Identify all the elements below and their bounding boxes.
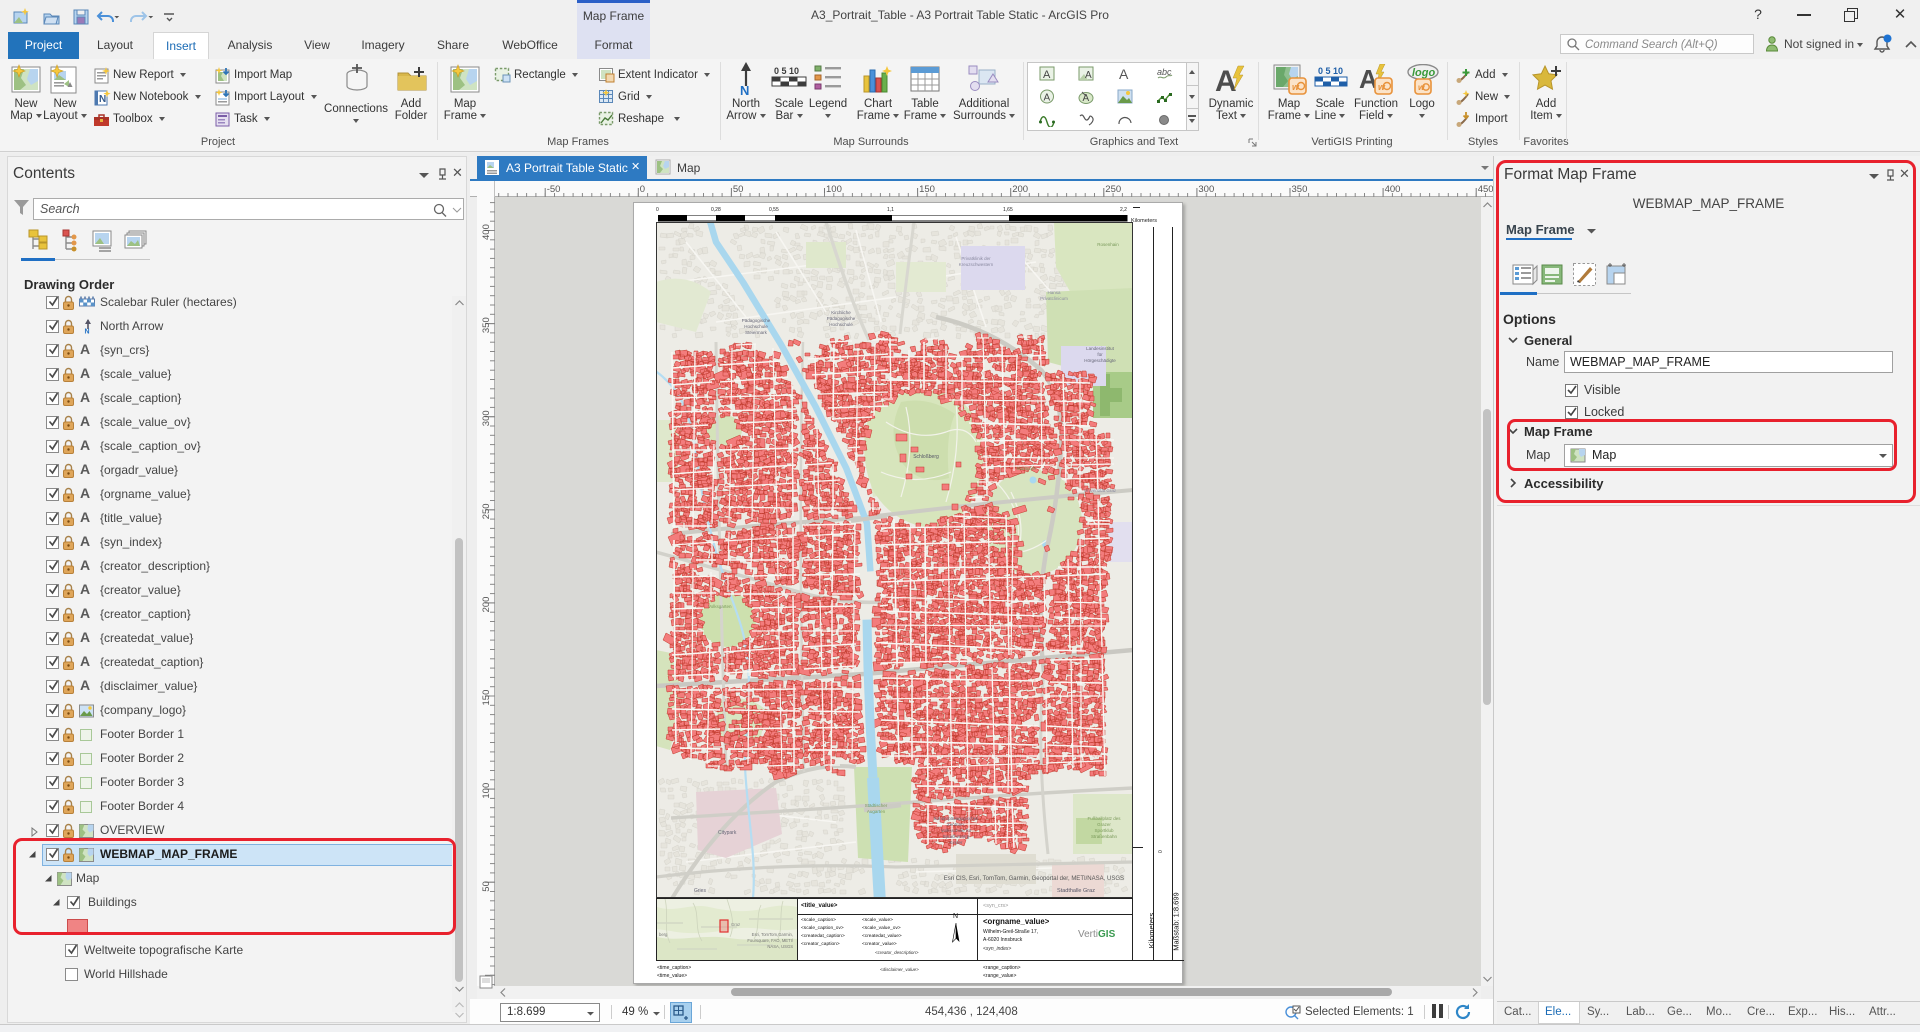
svg-text:200: 200 (481, 597, 492, 613)
svg-text:Rosenhain: Rosenhain (1097, 242, 1119, 247)
svg-text:Volksschule für: Volksschule für (941, 828, 972, 833)
svg-text:Grazer: Grazer (1097, 822, 1111, 827)
svg-text:0 5 10: 0 5 10 (774, 66, 799, 76)
svg-text:A: A (1119, 66, 1129, 81)
svg-text:Pädagogische: Pädagogische (827, 316, 856, 321)
svg-text:Kinder: Kinder (949, 840, 963, 845)
svg-text:Esri CIS, Esri, TomTom, Garmin: Esri CIS, Esri, TomTom, Garmin, Geoporta… (944, 876, 1124, 882)
svg-text:Hochschule: Hochschule (744, 324, 768, 329)
svg-text:Command Search (Alt+Q): Command Search (Alt+Q) (1585, 39, 1718, 51)
svg-text:Sportklub: Sportklub (1094, 828, 1114, 833)
svg-text:-50: -50 (547, 184, 561, 195)
svg-text:0: 0 (640, 184, 645, 195)
svg-text:Städtischer: Städtischer (865, 803, 888, 808)
svg-text:Landesinstitut: Landesinstitut (1086, 346, 1115, 351)
svg-text:50: 50 (733, 184, 744, 195)
svg-text:Privatclinicum: Privatclinicum (1040, 296, 1068, 301)
svg-text:N: N (740, 83, 749, 96)
svg-text:berg: berg (659, 932, 668, 937)
svg-text:Fußballplatz des: Fußballplatz des (1087, 816, 1121, 821)
svg-text:Hörgeschädigte: Hörgeschädigte (1084, 358, 1116, 363)
svg-text:150: 150 (481, 690, 492, 706)
svg-text:Volksgarten: Volksgarten (708, 604, 732, 609)
svg-text:Universität Graz: Universität Graz (1084, 488, 1117, 493)
svg-text:400: 400 (481, 224, 492, 240)
svg-text:0 5 10: 0 5 10 (1318, 66, 1343, 76)
svg-text:für: für (1097, 352, 1103, 357)
svg-text:A: A (1085, 70, 1092, 81)
svg-text:Augarten: Augarten (867, 809, 886, 814)
svg-text:Sprachzentrg: Sprachzentrg (943, 834, 970, 839)
svg-text:Steiermark: Steiermark (745, 330, 768, 335)
svg-text:Stadtpark: Stadtpark (1016, 466, 1036, 471)
svg-text:Stadthalle Graz: Stadthalle Graz (1057, 888, 1095, 894)
svg-text:logo: logo (1412, 67, 1435, 79)
svg-text:A: A (1215, 65, 1237, 94)
svg-text:A: A (1043, 69, 1051, 81)
svg-text:N: N (85, 329, 90, 335)
svg-text:350: 350 (481, 317, 492, 333)
svg-text:Pädagogische: Pädagogische (742, 318, 771, 323)
svg-text:Citypark: Citypark (718, 830, 737, 836)
svg-text:100: 100 (481, 783, 492, 799)
svg-text:Privatklinik der: Privatklinik der (961, 256, 991, 261)
svg-text:Kreuzschwestern: Kreuzschwestern (959, 262, 994, 267)
svg-text:Zentrum,: Zentrum, (947, 822, 965, 827)
svg-text:50: 50 (481, 881, 492, 892)
svg-text:Schloßberg: Schloßberg (913, 454, 939, 460)
svg-text:Hochschule: Hochschule (829, 322, 853, 327)
svg-text:A: A (1083, 93, 1090, 104)
svg-text:A: A (1044, 93, 1051, 104)
svg-text:Kirchliche: Kirchliche (831, 310, 851, 315)
svg-text:Straßenbahn: Straßenbahn (1091, 834, 1118, 839)
svg-text:Graz: Graz (731, 922, 740, 927)
svg-text:Sonderpädagogisches: Sonderpädagogisches (934, 816, 980, 821)
svg-text:N: N (99, 94, 106, 105)
svg-text:Gries: Gries (694, 888, 706, 894)
svg-text:250: 250 (481, 503, 492, 519)
svg-text:Hansa: Hansa (1047, 290, 1061, 295)
svg-text:300: 300 (481, 410, 492, 426)
